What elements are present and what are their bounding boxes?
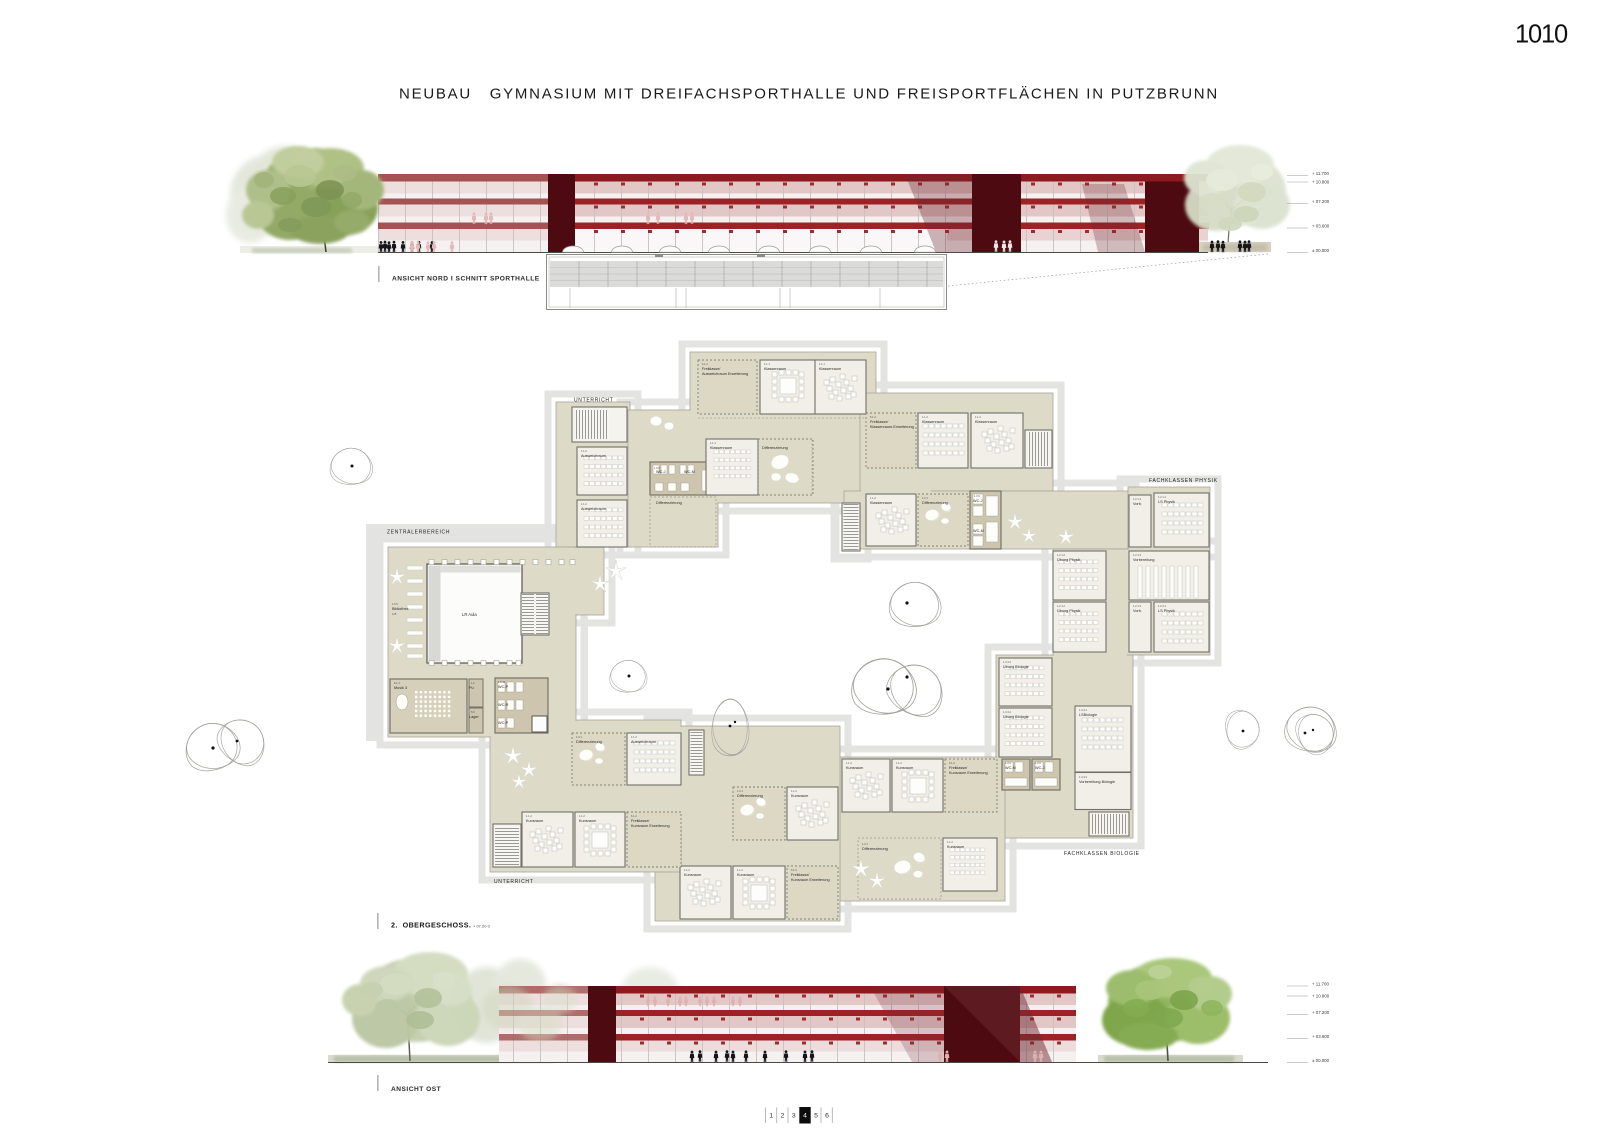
svg-text:6.1.2: 6.1.2 xyxy=(791,868,797,872)
svg-text:Ausweichraum Erweiterung: Ausweichraum Erweiterung xyxy=(702,372,748,376)
svg-text:1.2.1.1: 1.2.1.1 xyxy=(1158,495,1166,499)
svg-text:LR Aula: LR Aula xyxy=(462,612,477,617)
svg-text:1.1.2: 1.1.2 xyxy=(791,789,797,793)
svg-text:Kunsraum: Kunsraum xyxy=(791,794,808,798)
svg-text:Musik 3: Musik 3 xyxy=(394,686,407,690)
svg-text:5.1.2: 5.1.2 xyxy=(870,415,876,419)
svg-text:1.1.2: 1.1.2 xyxy=(684,868,690,872)
svg-text:Lager: Lager xyxy=(469,715,479,719)
svg-text:Übung Biologie: Übung Biologie xyxy=(1003,665,1029,669)
svg-text:5: 5 xyxy=(814,1113,818,1120)
svg-text:1010: 1010 xyxy=(1515,21,1568,49)
svg-text:WC-J: WC-J xyxy=(1035,766,1045,770)
svg-text:1.1.2: 1.1.2 xyxy=(581,502,587,506)
svg-text:WC-M: WC-M xyxy=(1005,766,1016,770)
svg-text:1.3.6: 1.3.6 xyxy=(974,494,980,498)
svg-text:1.2.1.3: 1.2.1.3 xyxy=(1133,604,1141,608)
svg-text:Klassenraum: Klassenraum xyxy=(764,367,786,371)
svg-text:Freiklasse/: Freiklasse/ xyxy=(949,766,968,770)
svg-text:WC-J: WC-J xyxy=(656,470,666,474)
svg-text:1.1.2: 1.1.2 xyxy=(526,814,532,818)
svg-text:Ausweichraum: Ausweichraum xyxy=(631,740,656,744)
svg-text:+ 11.700: + 11.700 xyxy=(1312,171,1329,176)
svg-text:1.1.2: 1.1.2 xyxy=(631,735,637,739)
svg-text:+ 10.800: + 10.800 xyxy=(1312,180,1330,185)
svg-text:ZENTRALERBEREICH: ZENTRALERBEREICH xyxy=(387,530,450,536)
svg-text:WC-M: WC-M xyxy=(684,470,695,474)
svg-text:1.2.1.3: 1.2.1.3 xyxy=(1133,553,1141,557)
svg-text:Differenzierung: Differenzierung xyxy=(922,501,948,505)
svg-text:Vorbereitung: Vorbereitung xyxy=(1133,558,1155,562)
svg-text:Kunsraum Erweiterung: Kunsraum Erweiterung xyxy=(949,771,988,775)
svg-text:Klassenraum: Klassenraum xyxy=(710,446,732,450)
svg-text:WC-P: WC-P xyxy=(498,721,509,725)
svg-text:Kunsraum: Kunsraum xyxy=(579,819,596,823)
svg-text:Übung Physik: Übung Physik xyxy=(1057,558,1081,562)
svg-text:Freiklasse/: Freiklasse/ xyxy=(870,420,889,424)
svg-text:1.1.2: 1.1.2 xyxy=(579,814,585,818)
svg-text:1.1.1: 1.1.1 xyxy=(819,362,825,366)
svg-text:4.1.2: 4.1.2 xyxy=(702,362,708,366)
svg-text:Kunsraum: Kunsraum xyxy=(947,845,964,849)
svg-text:1.2.1.2: 1.2.1.2 xyxy=(1057,604,1065,608)
svg-text:Differenzierung: Differenzierung xyxy=(656,501,682,505)
svg-text:2. OBERGESCHOSS.: 2. OBERGESCHOSS. xyxy=(391,921,471,930)
svg-text:6.1.2: 6.1.2 xyxy=(631,814,637,818)
svg-text:1.1.1: 1.1.1 xyxy=(710,441,716,445)
svg-text:+ 07.200: + 07.200 xyxy=(1312,1010,1330,1015)
svg-text:LSBiologie: LSBiologie xyxy=(1079,713,1097,717)
svg-text:3: 3 xyxy=(792,1113,796,1120)
svg-text:LS Physik: LS Physik xyxy=(1158,500,1175,504)
svg-text:1.1.2: 1.1.2 xyxy=(846,761,852,765)
svg-text:+ 07.200: + 07.200 xyxy=(1312,199,1330,204)
svg-text:WC-J: WC-J xyxy=(973,499,983,503)
svg-text:1.3.6: 1.3.6 xyxy=(1035,761,1041,765)
svg-text:1.1.1: 1.1.1 xyxy=(764,362,770,366)
svg-text:1.4.3.3: 1.4.3.3 xyxy=(1079,775,1087,779)
svg-text:1.1.2: 1.1.2 xyxy=(737,868,743,872)
svg-text:1.2.1: 1.2.1 xyxy=(922,496,928,500)
svg-text:+ 07.20 0: + 07.20 0 xyxy=(473,924,491,929)
svg-text:Klassenraum-Erweiterung: Klassenraum-Erweiterung xyxy=(870,425,914,429)
svg-text:Bibliothek: Bibliothek xyxy=(392,607,409,611)
svg-text:Differenzierung: Differenzierung xyxy=(762,446,788,450)
svg-text:1.5.5: 1.5.5 xyxy=(392,602,398,606)
svg-text:Differenzierung: Differenzierung xyxy=(737,794,763,798)
svg-text:WC-P: WC-P xyxy=(498,685,509,689)
svg-text:Kunsraum: Kunsraum xyxy=(684,873,701,877)
svg-text:Vorb.: Vorb. xyxy=(1133,609,1142,613)
svg-text:1.2: 1.2 xyxy=(471,681,475,685)
svg-text:Freiklasse/: Freiklasse/ xyxy=(631,819,650,823)
svg-text:Freiklasse/: Freiklasse/ xyxy=(702,367,721,371)
svg-text:ANSICHT NORD I SCHNITT SPORTHA: ANSICHT NORD I SCHNITT SPORTHALLE xyxy=(392,276,540,283)
svg-text:1.1.2: 1.1.2 xyxy=(581,449,587,453)
svg-text:1.2.1.3: 1.2.1.3 xyxy=(1133,497,1141,501)
svg-text:1.1.2: 1.1.2 xyxy=(870,496,876,500)
svg-text:1: 1 xyxy=(769,1113,773,1120)
svg-text:± 00.000: ± 00.000 xyxy=(1312,248,1330,253)
svg-text:FACHKLASSEN BIOLOGIE: FACHKLASSEN BIOLOGIE xyxy=(1064,851,1140,857)
svg-text:+ 03.600: + 03.600 xyxy=(1312,1034,1330,1039)
svg-text:NEUBAU GYMNASIUM MIT DREIFAC: NEUBAU GYMNASIUM MIT DREIFACHSPORTHALLE … xyxy=(399,86,1219,103)
svg-text:WC-R: WC-R xyxy=(498,703,509,707)
svg-text:1.4.3.2: 1.4.3.2 xyxy=(1003,660,1011,664)
svg-text:Kunsraum: Kunsraum xyxy=(526,819,543,823)
svg-text:Ausweichraum: Ausweichraum xyxy=(581,454,606,458)
svg-text:5.6: 5.6 xyxy=(471,710,475,714)
svg-text:Ausweichraum: Ausweichraum xyxy=(581,507,606,511)
svg-text:1.2.1.2: 1.2.1.2 xyxy=(1057,553,1065,557)
svg-text:1.1.2: 1.1.2 xyxy=(975,415,981,419)
svg-text:2: 2 xyxy=(781,1113,785,1120)
svg-text:Kunsraum: Kunsraum xyxy=(737,873,754,877)
svg-text:Kunsraum: Kunsraum xyxy=(896,766,913,770)
svg-text:LS Physik: LS Physik xyxy=(1158,609,1175,613)
svg-text:Kunsraum: Kunsraum xyxy=(846,766,863,770)
svg-text:6.1.2: 6.1.2 xyxy=(949,761,955,765)
svg-text:WC-M: WC-M xyxy=(973,529,984,533)
svg-text:1.2.3.1: 1.2.3.1 xyxy=(1158,604,1166,608)
svg-text:1.5.10: 1.5.10 xyxy=(498,680,506,684)
svg-text:4: 4 xyxy=(803,1113,807,1120)
svg-text:1.3.1: 1.3.1 xyxy=(862,842,868,846)
svg-text:Pu: Pu xyxy=(469,686,474,690)
svg-text:125: 125 xyxy=(392,612,397,616)
svg-text:UNTERRICHT: UNTERRICHT xyxy=(494,879,534,885)
svg-text:Klassenraum: Klassenraum xyxy=(975,420,997,424)
svg-text:Freiklasse/: Freiklasse/ xyxy=(791,873,810,877)
svg-text:Kunsraum Erweiterung: Kunsraum Erweiterung xyxy=(631,824,670,828)
svg-text:Klassenraum: Klassenraum xyxy=(922,420,944,424)
svg-text:1.1.2: 1.1.2 xyxy=(922,415,928,419)
svg-text:Kunsraum Erweiterung: Kunsraum Erweiterung xyxy=(791,878,830,882)
svg-text:+ 03.600: + 03.600 xyxy=(1312,224,1330,229)
svg-text:1.4.3.2: 1.4.3.2 xyxy=(1003,710,1011,714)
svg-text:Vorbereitung Biologie: Vorbereitung Biologie xyxy=(1079,780,1115,784)
svg-text:Übung Physik: Übung Physik xyxy=(1057,609,1081,613)
svg-text:1.1.2: 1.1.2 xyxy=(947,840,953,844)
svg-text:± 00.000: ± 00.000 xyxy=(1312,1058,1330,1063)
svg-text:Klassenraum: Klassenraum xyxy=(870,501,892,505)
svg-text:1.3.6: 1.3.6 xyxy=(1005,761,1011,765)
svg-text:6: 6 xyxy=(825,1113,829,1120)
svg-text:FACHKLASSEN PHYSIK: FACHKLASSEN PHYSIK xyxy=(1149,478,1218,484)
svg-text:Klassenraum: Klassenraum xyxy=(819,367,841,371)
svg-text:Differenzierung: Differenzierung xyxy=(576,740,602,744)
svg-text:1.3.1: 1.3.1 xyxy=(576,735,582,739)
svg-text:Vorb.: Vorb. xyxy=(1133,502,1142,506)
svg-text:1.4.3.1: 1.4.3.1 xyxy=(1079,708,1087,712)
svg-text:+ 11.700: + 11.700 xyxy=(1312,982,1329,987)
svg-text:1.3.1: 1.3.1 xyxy=(737,789,743,793)
svg-text:ANSICHT OST: ANSICHT OST xyxy=(391,1086,441,1093)
svg-text:Übung Biologie: Übung Biologie xyxy=(1003,715,1029,719)
svg-text:1.1.2: 1.1.2 xyxy=(896,761,902,765)
svg-text:+ 10.800: + 10.800 xyxy=(1312,994,1330,999)
svg-text:UNTERRICHT: UNTERRICHT xyxy=(574,398,614,404)
svg-text:Differenzierung: Differenzierung xyxy=(862,847,888,851)
svg-text:6.1.4: 6.1.4 xyxy=(394,681,400,685)
